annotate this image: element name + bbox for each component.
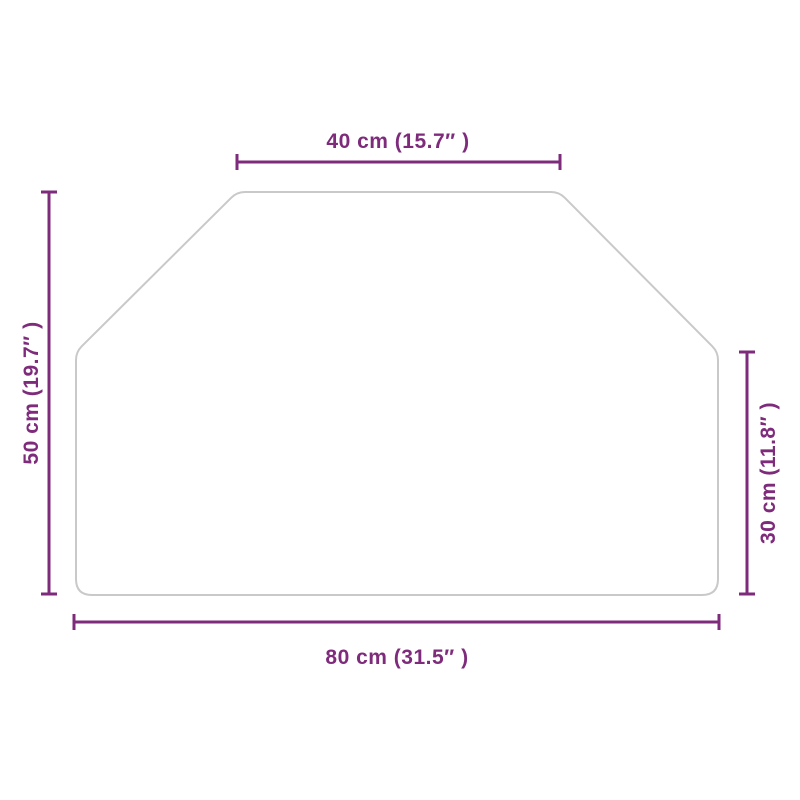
dimension-label-bottom: 80 cm (31.5″ ) (325, 646, 468, 670)
diagram-canvas (0, 0, 800, 800)
dimension-label-top: 40 cm (15.7″ ) (326, 130, 469, 154)
dimension-line-right (739, 352, 755, 594)
dimension-line-top (237, 154, 560, 170)
dimension-label-left: 50 cm (19.7″ ) (20, 321, 44, 464)
dimension-label-right: 30 cm (11.8″ ) (757, 402, 781, 544)
hexagon-panel-outline (76, 192, 718, 595)
dimension-line-bottom (74, 614, 719, 630)
product-dimension-diagram: 40 cm (15.7″ ) 80 cm (31.5″ ) 50 cm (19.… (0, 0, 800, 800)
